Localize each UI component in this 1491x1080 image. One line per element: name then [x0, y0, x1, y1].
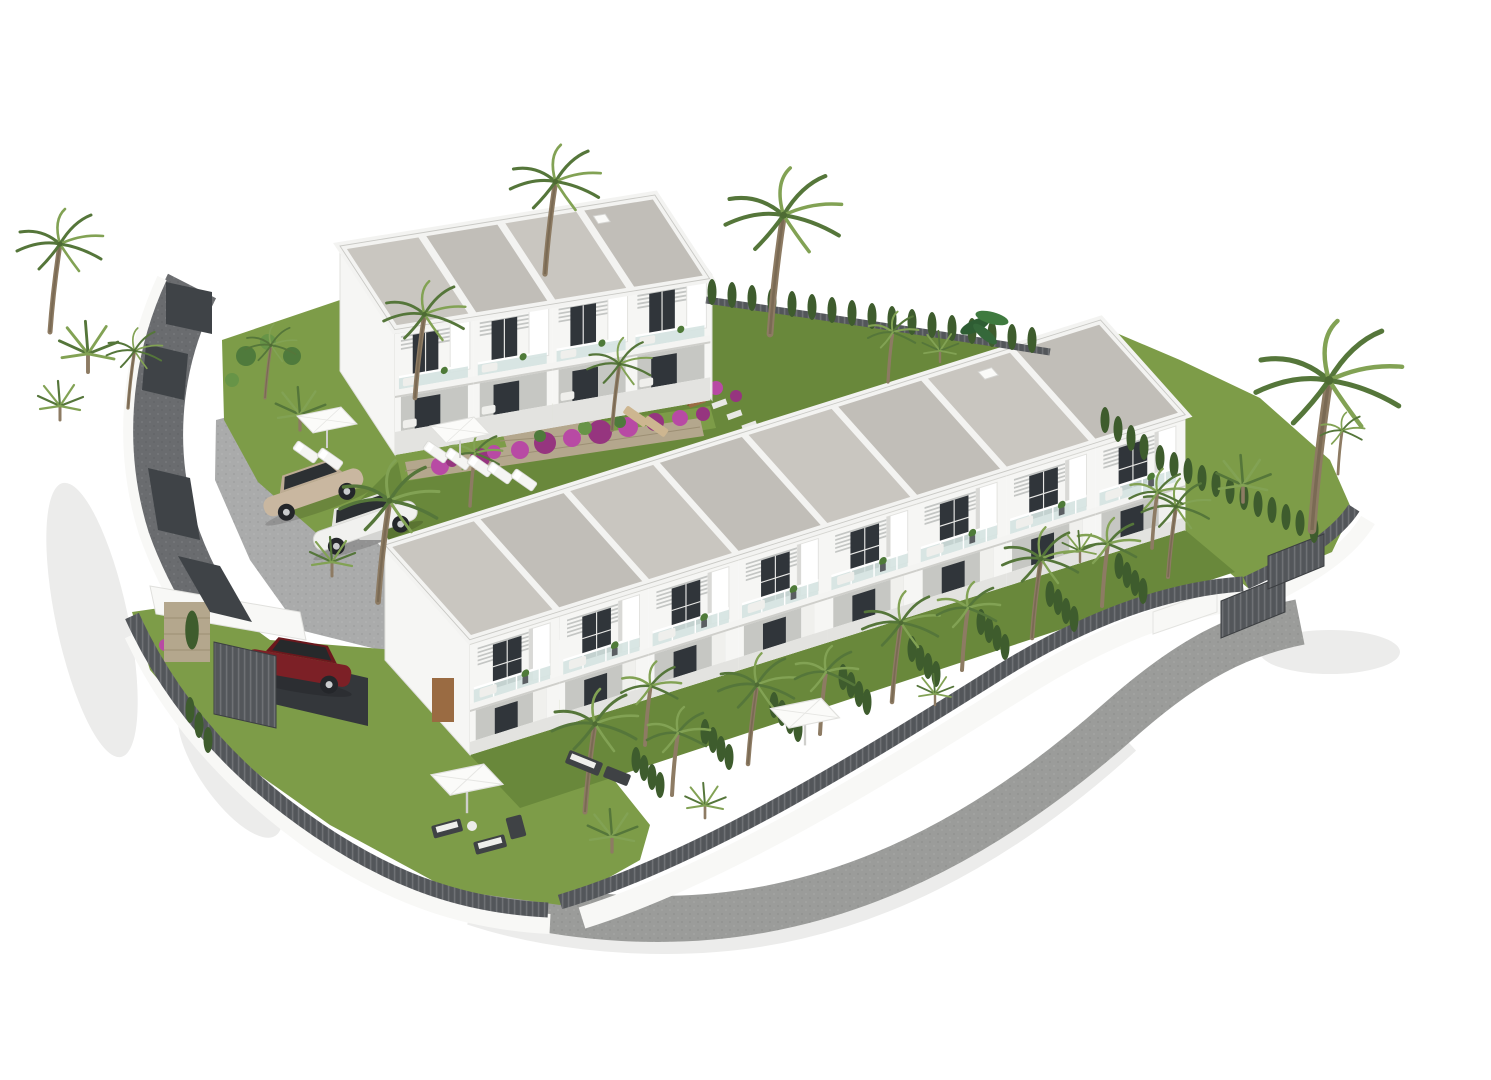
architectural-render	[0, 0, 1491, 1080]
long-block-entry-door	[432, 678, 454, 722]
garage-gate	[214, 642, 276, 728]
render-canvas	[0, 0, 1491, 1080]
